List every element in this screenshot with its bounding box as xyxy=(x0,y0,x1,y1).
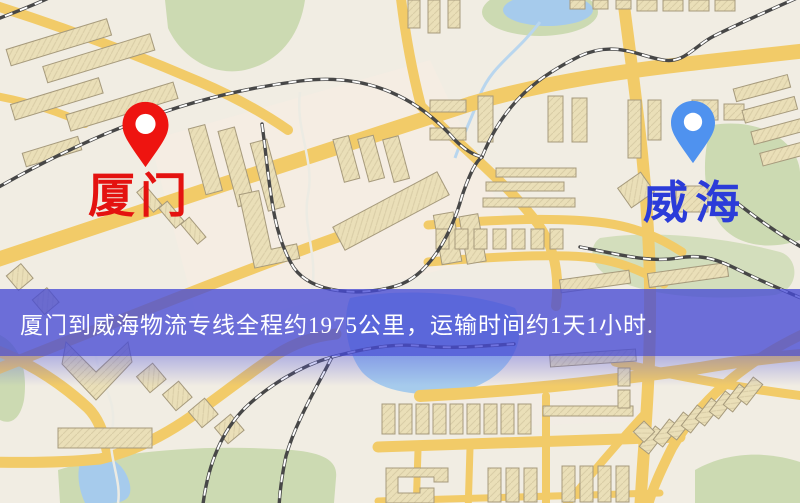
destination-city-label: 威海 xyxy=(643,180,747,225)
route-info-text: 厦门到威海物流专线全程约1975公里，运输时间约1天1小时. xyxy=(0,306,654,340)
map-canvas xyxy=(0,0,800,503)
banner-fade xyxy=(0,356,800,386)
route-info-banner: 厦门到威海物流专线全程约1975公里，运输时间约1天1小时. xyxy=(0,289,800,356)
destination-location-pin-icon[interactable] xyxy=(667,99,719,165)
origin-city-label: 厦门 xyxy=(88,172,192,219)
origin-location-pin-icon[interactable] xyxy=(118,100,173,169)
map-view: 厦门 威海 厦门到威海物流专线全程约1975公里，运输时间约1天1小时. xyxy=(0,0,800,503)
